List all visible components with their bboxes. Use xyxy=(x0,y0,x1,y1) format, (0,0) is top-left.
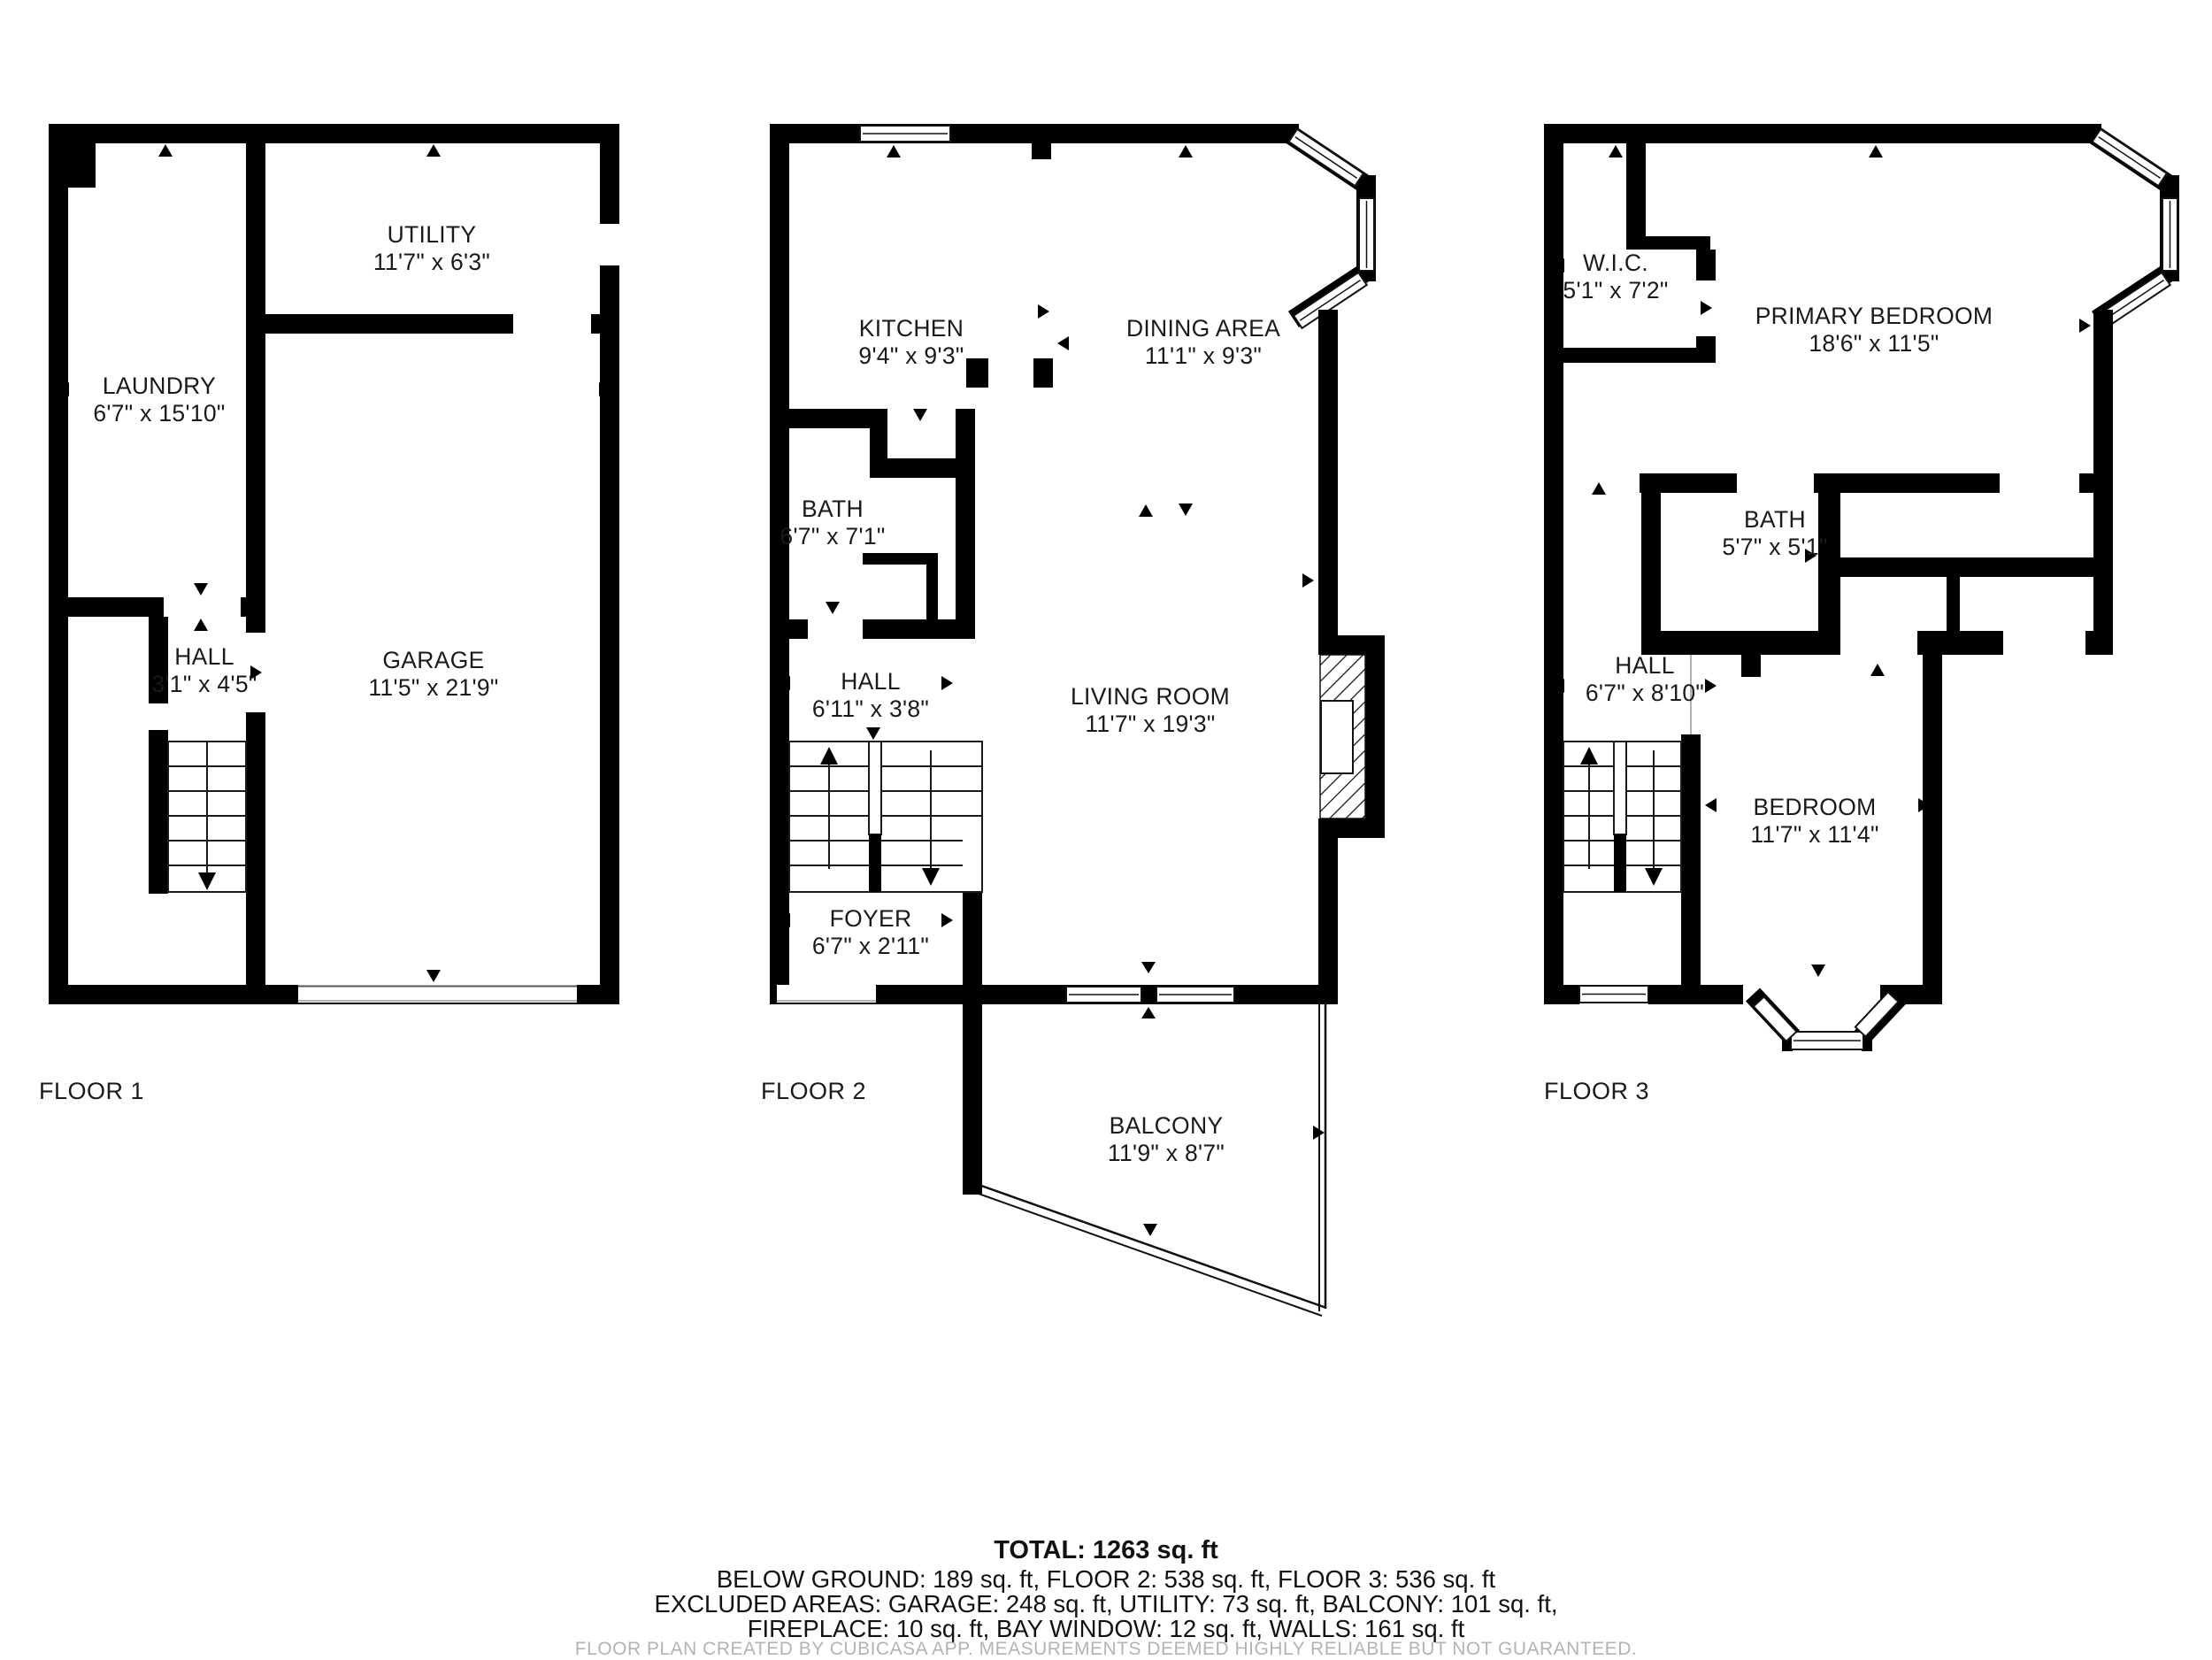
room-label-dining-area: DINING AREA 11'1" x 9'3" xyxy=(1126,315,1280,370)
room-label-hall-f2: HALL 6'11" x 3'8" xyxy=(812,668,929,723)
room-dims: 6'7" x 15'10" xyxy=(93,400,225,427)
room-name: HALL xyxy=(151,643,257,671)
room-dims: 11'7" x 11'4" xyxy=(1750,821,1878,849)
floor-plan-page: { "floors": [ { "label": "FLOOR 1", "roo… xyxy=(0,0,2212,1659)
room-label-bath-f3: BATH 5'7" x 5'1" xyxy=(1722,506,1827,561)
room-name: DINING AREA xyxy=(1126,315,1280,342)
room-dims: 18'6" x 11'5" xyxy=(1755,330,1993,357)
floor2-fireplace xyxy=(1318,635,1385,838)
room-dims: 6'7" x 2'11" xyxy=(812,933,929,960)
floor1-plan xyxy=(49,124,619,1004)
room-name: BEDROOM xyxy=(1750,794,1878,821)
floor3-title: FLOOR 3 xyxy=(1544,1078,1649,1105)
room-label-hall-f3: HALL 6'7" x 8'10" xyxy=(1586,652,1704,707)
room-label-hall-f1: HALL 3'1" x 4'5" xyxy=(151,643,257,698)
room-name: HALL xyxy=(812,668,929,696)
room-label-wic: W.I.C. 5'1" x 7'2" xyxy=(1563,250,1668,304)
room-name: PRIMARY BEDROOM xyxy=(1755,303,1993,330)
room-name: UTILITY xyxy=(373,221,490,249)
room-dims: 11'7" x 6'3" xyxy=(373,249,490,276)
room-name: LIVING ROOM xyxy=(1071,683,1230,711)
room-dims: 11'5" x 21'9" xyxy=(368,674,498,702)
floor3-stairs xyxy=(1563,742,1681,892)
floor3-bay-window xyxy=(2093,129,2179,328)
room-label-living-room: LIVING ROOM 11'7" x 19'3" xyxy=(1071,683,1230,738)
room-label-foyer: FOYER 6'7" x 2'11" xyxy=(812,905,929,960)
room-name: HALL xyxy=(1586,652,1704,680)
room-dims: 6'7" x 7'1" xyxy=(780,523,885,550)
room-name: LAUNDRY xyxy=(93,373,225,400)
room-dims: 3'1" x 4'5" xyxy=(151,671,257,698)
room-dims: 5'7" x 5'1" xyxy=(1722,534,1827,561)
disclaimer-footer: FLOOR PLAN CREATED BY CUBICASA APP. MEAS… xyxy=(0,1639,2212,1660)
room-dims: 9'4" x 9'3" xyxy=(858,342,964,370)
room-name: GARAGE xyxy=(368,647,498,674)
room-name: BATH xyxy=(780,496,885,523)
summary-total: TOTAL: 1263 sq. ft xyxy=(0,1536,2212,1565)
room-dims: 6'11" x 3'8" xyxy=(812,696,929,723)
room-label-balcony: BALCONY 11'9" x 8'7" xyxy=(1108,1112,1225,1167)
floor2-bay-window xyxy=(1289,129,1376,328)
room-label-laundry: LAUNDRY 6'7" x 15'10" xyxy=(93,373,225,427)
room-label-primary-bedroom: PRIMARY BEDROOM 18'6" x 11'5" xyxy=(1755,303,1993,357)
room-label-utility: UTILITY 11'7" x 6'3" xyxy=(373,221,490,276)
room-dims: 11'9" x 8'7" xyxy=(1108,1140,1225,1167)
floor1-stairs xyxy=(168,742,246,892)
room-dims: 11'1" x 9'3" xyxy=(1126,342,1280,370)
room-label-bedroom: BEDROOM 11'7" x 11'4" xyxy=(1750,794,1878,849)
room-dims: 5'1" x 7'2" xyxy=(1563,277,1668,304)
room-name: BALCONY xyxy=(1108,1112,1225,1140)
room-label-kitchen: KITCHEN 9'4" x 9'3" xyxy=(858,315,964,370)
floor3-bedroom-bay-window xyxy=(1753,992,1901,1051)
room-name: W.I.C. xyxy=(1563,250,1668,277)
room-dims: 11'7" x 19'3" xyxy=(1071,711,1230,738)
floor2-title: FLOOR 2 xyxy=(761,1078,866,1105)
room-name: KITCHEN xyxy=(858,315,964,342)
floor-plan-drawing xyxy=(0,0,2212,1659)
room-name: BATH xyxy=(1722,506,1827,534)
room-dims: 6'7" x 8'10" xyxy=(1586,680,1704,707)
floor2-stairs xyxy=(789,742,982,892)
room-name: FOYER xyxy=(812,905,929,933)
floor1-title: FLOOR 1 xyxy=(39,1078,144,1105)
room-label-garage: GARAGE 11'5" x 21'9" xyxy=(368,647,498,702)
room-label-bath-f2: BATH 6'7" x 7'1" xyxy=(780,496,885,550)
